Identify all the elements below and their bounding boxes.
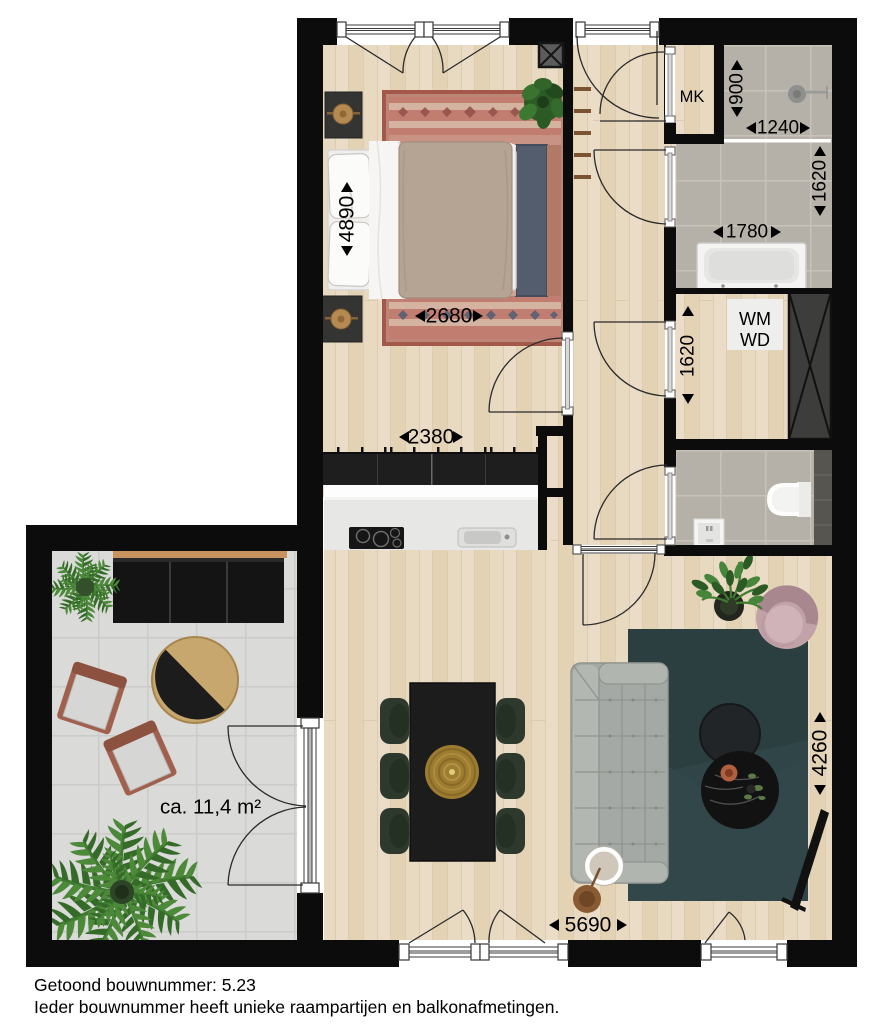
svg-text:4890: 4890 — [336, 196, 359, 243]
svg-text:WD: WD — [740, 330, 770, 350]
svg-text:1620: 1620 — [810, 160, 831, 202]
svg-text:1780: 1780 — [726, 222, 768, 243]
svg-text:5690: 5690 — [565, 914, 612, 937]
svg-text:ca. 11,4 m²: ca. 11,4 m² — [160, 796, 261, 819]
svg-text:2680: 2680 — [426, 305, 473, 328]
svg-text:900: 900 — [727, 73, 748, 105]
svg-text:MK: MK — [680, 88, 705, 106]
svg-text:4260: 4260 — [809, 730, 832, 777]
svg-text:1620: 1620 — [678, 335, 699, 377]
svg-text:Getoond bouwnummer: 5.23: Getoond bouwnummer: 5.23 — [34, 975, 256, 995]
svg-text:1240: 1240 — [757, 118, 799, 139]
svg-text:Ieder bouwnummer heeft unieke: Ieder bouwnummer heeft unieke raampartij… — [34, 997, 559, 1017]
svg-text:WM: WM — [739, 309, 771, 329]
svg-text:2380: 2380 — [408, 426, 455, 449]
